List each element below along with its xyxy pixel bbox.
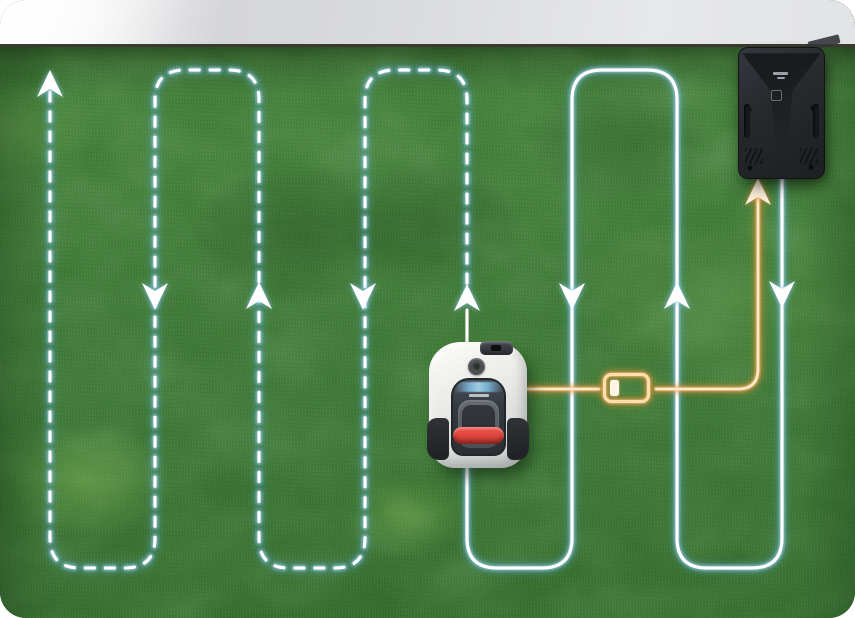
return-to-base-path xyxy=(528,196,758,389)
lawn-aerial-illustration xyxy=(0,0,855,618)
screw-icon xyxy=(748,166,752,170)
mower-red-bumper xyxy=(453,427,504,444)
side-slot xyxy=(744,104,750,138)
mower-center-panel xyxy=(451,378,506,456)
battery-charge-bar xyxy=(610,380,619,396)
low-battery-icon xyxy=(605,375,649,402)
mower-right-wheel xyxy=(507,418,529,460)
mower-power-button xyxy=(468,358,485,375)
station-emblem xyxy=(771,90,782,101)
station-label xyxy=(773,72,788,75)
station-sublabel xyxy=(777,77,785,79)
planned-mow-path xyxy=(50,70,467,568)
vent-slots xyxy=(800,148,818,164)
charging-station xyxy=(738,47,825,179)
mowing-routes-overlay xyxy=(0,0,855,618)
robot-mower xyxy=(429,342,527,468)
screw-icon xyxy=(809,165,813,169)
panel-blue-accent xyxy=(455,382,502,392)
vent-slots xyxy=(745,148,763,164)
mower-left-wheel xyxy=(427,418,449,460)
side-slot xyxy=(813,104,819,138)
mower-brand-label xyxy=(469,394,489,397)
traveled-mow-path xyxy=(467,70,782,568)
camera-sensor-icon xyxy=(480,341,513,355)
